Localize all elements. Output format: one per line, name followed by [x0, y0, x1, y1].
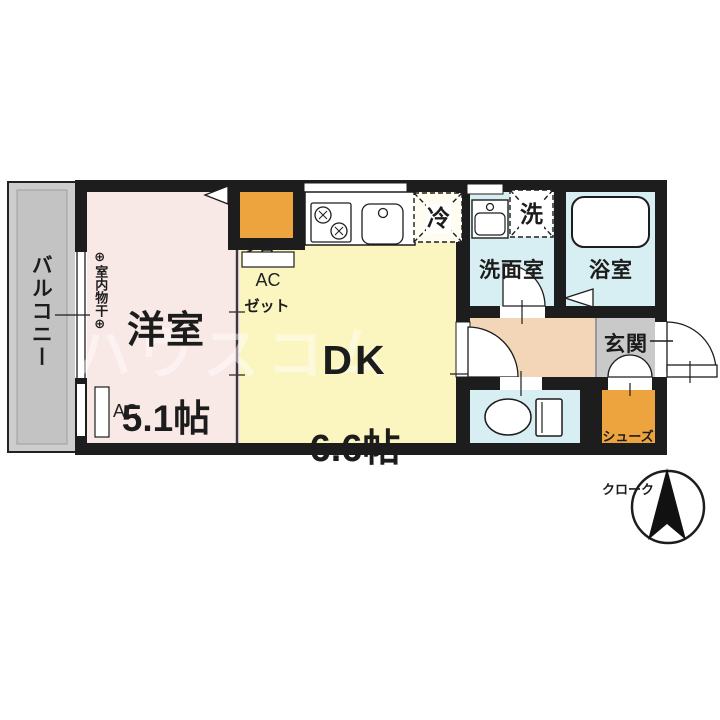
entrance-door [667, 322, 717, 383]
toilet-icon [485, 399, 562, 436]
refrigerator-label: 冷 [426, 204, 451, 233]
washbasin-icon [472, 200, 508, 238]
door-shoe-cloak [608, 355, 652, 396]
shoe-cloak-label-line1: シューズ [597, 428, 659, 446]
bathroom-label: 浴室 [570, 258, 652, 284]
balcony-label: バルコニー [27, 254, 53, 379]
kitchen-counter-icon [305, 192, 415, 245]
shoe-cloak-label: シューズ クローク [597, 393, 659, 516]
sink-icon [362, 204, 403, 244]
wall-slot [77, 384, 85, 436]
dk-size: 6.6帖 [265, 426, 445, 474]
floorplan-canvas: ハウスコム バルコニー ⊕室内物干⊕ 洋室 5.1帖 DK 6.6帖 クロー ゼ… [0, 0, 720, 720]
dk-name: DK [265, 335, 445, 386]
stove-icon [311, 203, 351, 242]
bathtub-icon [572, 197, 649, 247]
closet-label: クロー ゼット [238, 196, 296, 338]
closet-label-line2: ゼット [238, 297, 296, 317]
western-room-label: 洋室 5.1帖 [90, 268, 242, 462]
shoe-cloak-label-line2: クローク [597, 481, 659, 499]
washroom-window [467, 184, 503, 194]
washroom-label: 洗面室 [468, 258, 556, 284]
ac-label-room: AC [113, 400, 138, 423]
closet-label-line1: クロー [238, 237, 296, 257]
ac-label-dk: AC [240, 269, 296, 292]
washer-label: 洗 [519, 200, 544, 229]
western-room-name: 洋室 [90, 308, 242, 356]
entrance-label: 玄関 [597, 332, 655, 358]
